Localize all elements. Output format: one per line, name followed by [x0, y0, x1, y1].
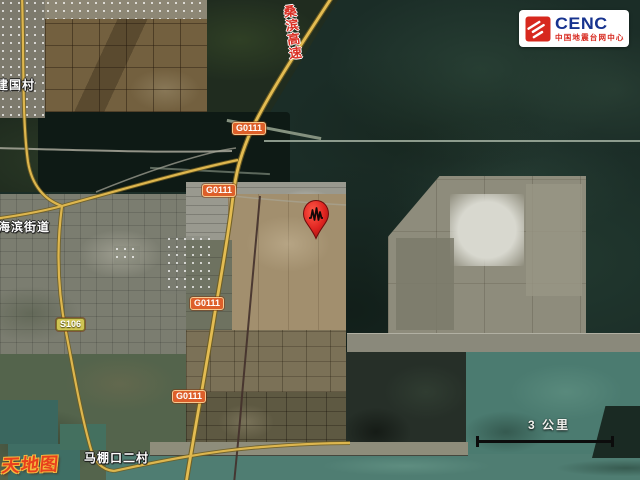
- cenc-red-stripes-icon: [525, 16, 551, 42]
- scale-label: 3 公里: [468, 416, 630, 433]
- road-badge-g0111: G0111: [202, 184, 236, 197]
- tianditu-watermark: 天地图: [1, 450, 61, 478]
- epicenter-marker[interactable]: [302, 199, 330, 241]
- scale-tick-left: [476, 436, 479, 447]
- road-badge-g0111: G0111: [190, 297, 224, 310]
- map-viewport[interactable]: 建国村 海滨街道 马棚口二村 桑 滨 高 速 G0111 G0111 G0111…: [0, 0, 640, 480]
- cenc-logo: CENC 中国地震台网中心: [519, 10, 629, 47]
- cenc-acronym: CENC: [555, 15, 628, 32]
- scale-bar-line: [476, 440, 614, 443]
- scale-tick-right: [611, 436, 614, 447]
- expressway-char: 速: [288, 46, 303, 61]
- cenc-full-name: 中国地震台网中心: [555, 34, 625, 42]
- place-label-haibin-jiedao: 海滨街道: [0, 218, 50, 235]
- place-label-jianguocun: 建国村: [0, 76, 35, 93]
- road-badge-g0111: G0111: [172, 390, 206, 403]
- map-scale: 3 公里: [468, 416, 630, 452]
- epicenter-pin-icon: [304, 201, 329, 239]
- road-badge-s106: S106: [56, 318, 85, 331]
- road-badge-g0111: G0111: [232, 122, 266, 135]
- place-label-mapengkou-ercun: 马棚口二村: [84, 449, 149, 466]
